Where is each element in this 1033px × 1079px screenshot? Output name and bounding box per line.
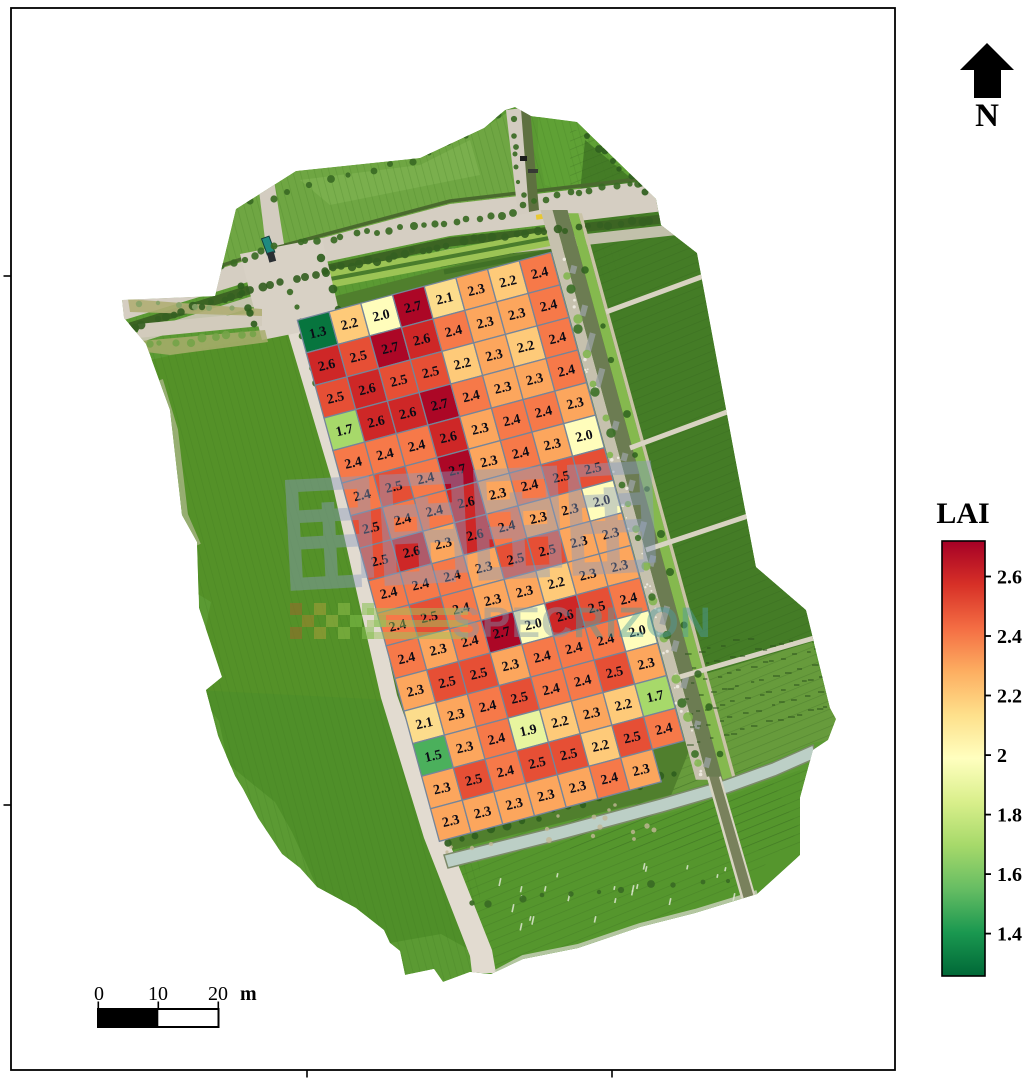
svg-text:SPECRIZON: SPECRIZON xyxy=(452,599,712,647)
svg-text:1.8: 1.8 xyxy=(997,805,1022,827)
svg-text:LAI: LAI xyxy=(936,497,989,530)
svg-text:2: 2 xyxy=(997,745,1007,767)
svg-text:2.6: 2.6 xyxy=(997,567,1022,589)
svg-text:m: m xyxy=(240,983,257,1005)
svg-text:2.2: 2.2 xyxy=(997,686,1022,708)
svg-text:2.4: 2.4 xyxy=(997,626,1022,648)
svg-text:N: N xyxy=(975,98,999,134)
svg-text:1.6: 1.6 xyxy=(997,864,1022,886)
svg-text:1.4: 1.4 xyxy=(997,924,1022,946)
